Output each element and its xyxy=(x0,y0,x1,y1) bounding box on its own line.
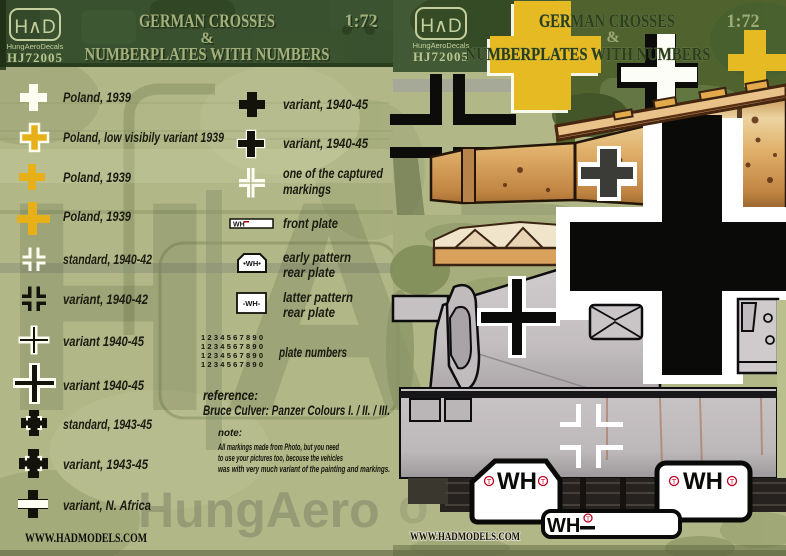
svg-text:HJ72005: HJ72005 xyxy=(413,49,469,64)
svg-text:latter pattern: latter pattern xyxy=(283,290,353,305)
svg-text:All markings made from Photo,: All markings made from Photo, but you ne… xyxy=(217,442,339,452)
svg-text:note:: note: xyxy=(218,427,242,439)
svg-text:WH: WH xyxy=(233,222,245,229)
svg-text:H∧D: H∧D xyxy=(14,17,55,38)
svg-text:T: T xyxy=(487,479,492,486)
svg-text:WH: WH xyxy=(497,468,537,495)
svg-text:Poland, 1939: Poland, 1939 xyxy=(63,170,131,185)
svg-text:WWW.HADMODELS.COM: WWW.HADMODELS.COM xyxy=(25,530,147,545)
svg-text:standard, 1943-45: standard, 1943-45 xyxy=(63,417,152,432)
svg-text:WH: WH xyxy=(683,468,723,495)
svg-text:variant, 1940-45: variant, 1940-45 xyxy=(283,97,368,112)
svg-text:early pattern: early pattern xyxy=(283,250,351,265)
svg-text:was with very much variant of: was with very much variant of the painti… xyxy=(218,464,390,474)
svg-text:Bruce Culver: Panzer Colours I: Bruce Culver: Panzer Colours I. / II. / … xyxy=(203,403,390,418)
svg-text:WWW.HADMODELS.COM: WWW.HADMODELS.COM xyxy=(410,529,520,543)
svg-text:Poland, 1939: Poland, 1939 xyxy=(63,209,131,224)
svg-text:HJ72005: HJ72005 xyxy=(7,50,63,65)
svg-text:variant, N. Africa: variant, N. Africa xyxy=(63,498,151,513)
svg-text:H∧D: H∧D xyxy=(420,16,461,37)
svg-text:one of the captured: one of the captured xyxy=(283,166,384,181)
svg-text:Poland, low visibily variant 1: Poland, low visibily variant 1939 xyxy=(63,130,224,145)
svg-text:T: T xyxy=(541,479,546,486)
svg-text:1:72: 1:72 xyxy=(727,11,760,32)
svg-text:variant, 1940-45: variant, 1940-45 xyxy=(283,136,368,151)
svg-text:-WH-: -WH- xyxy=(243,299,261,308)
svg-text:variant, 1943-45: variant, 1943-45 xyxy=(63,457,148,472)
svg-text:variant, 1940-42: variant, 1940-42 xyxy=(63,292,148,307)
svg-text:reference:: reference: xyxy=(203,388,258,403)
svg-text:NUMBERPLATES WITH NUMBERS: NUMBERPLATES WITH NUMBERS xyxy=(85,44,330,64)
svg-text:T: T xyxy=(586,516,590,523)
svg-text:HungAero: HungAero xyxy=(138,482,380,538)
svg-text:markings: markings xyxy=(283,182,331,197)
svg-text:standard, 1940-42: standard, 1940-42 xyxy=(63,252,152,267)
svg-text:Poland, 1939: Poland, 1939 xyxy=(63,90,131,105)
svg-text:plate numbers: plate numbers xyxy=(278,345,347,360)
svg-text:front plate: front plate xyxy=(283,216,338,231)
svg-text:GERMAN CROSSES: GERMAN CROSSES xyxy=(139,11,275,32)
svg-text:NUMBERPLATES WITH NUMBERS: NUMBERPLATES WITH NUMBERS xyxy=(466,44,711,64)
svg-text:T: T xyxy=(730,479,735,486)
svg-text:WH: WH xyxy=(547,515,580,537)
svg-text:to use your pictures too, beco: to use your pictures too, becouse the ve… xyxy=(218,453,343,463)
svg-text:variant 1940-45: variant 1940-45 xyxy=(63,334,144,349)
svg-text:T: T xyxy=(672,479,677,486)
svg-text:variant 1940-45: variant 1940-45 xyxy=(63,378,144,393)
svg-text:rear plate: rear plate xyxy=(283,305,335,320)
svg-text:rear plate: rear plate xyxy=(283,265,335,280)
svg-text:•WH•: •WH• xyxy=(243,259,261,268)
